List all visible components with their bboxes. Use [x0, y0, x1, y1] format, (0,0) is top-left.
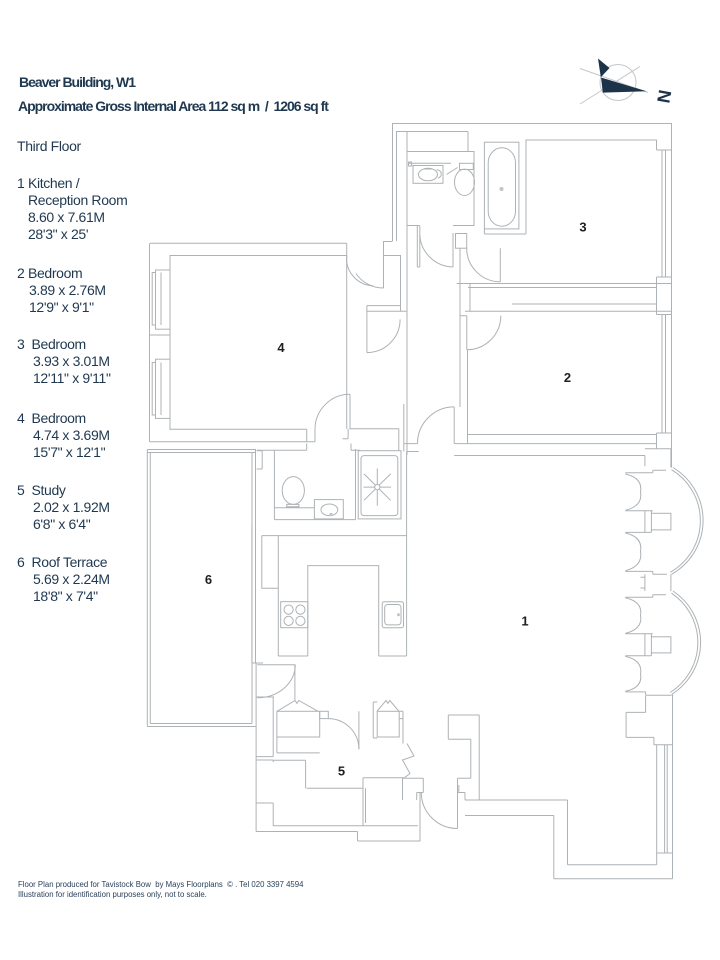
svg-text:4: 4 — [277, 340, 285, 355]
svg-text:1: 1 — [521, 614, 528, 629]
svg-text:5: 5 — [338, 764, 345, 779]
svg-text:N: N — [653, 88, 675, 104]
svg-text:3: 3 — [579, 220, 586, 235]
svg-text:2: 2 — [564, 370, 571, 385]
svg-text:6: 6 — [205, 572, 212, 587]
